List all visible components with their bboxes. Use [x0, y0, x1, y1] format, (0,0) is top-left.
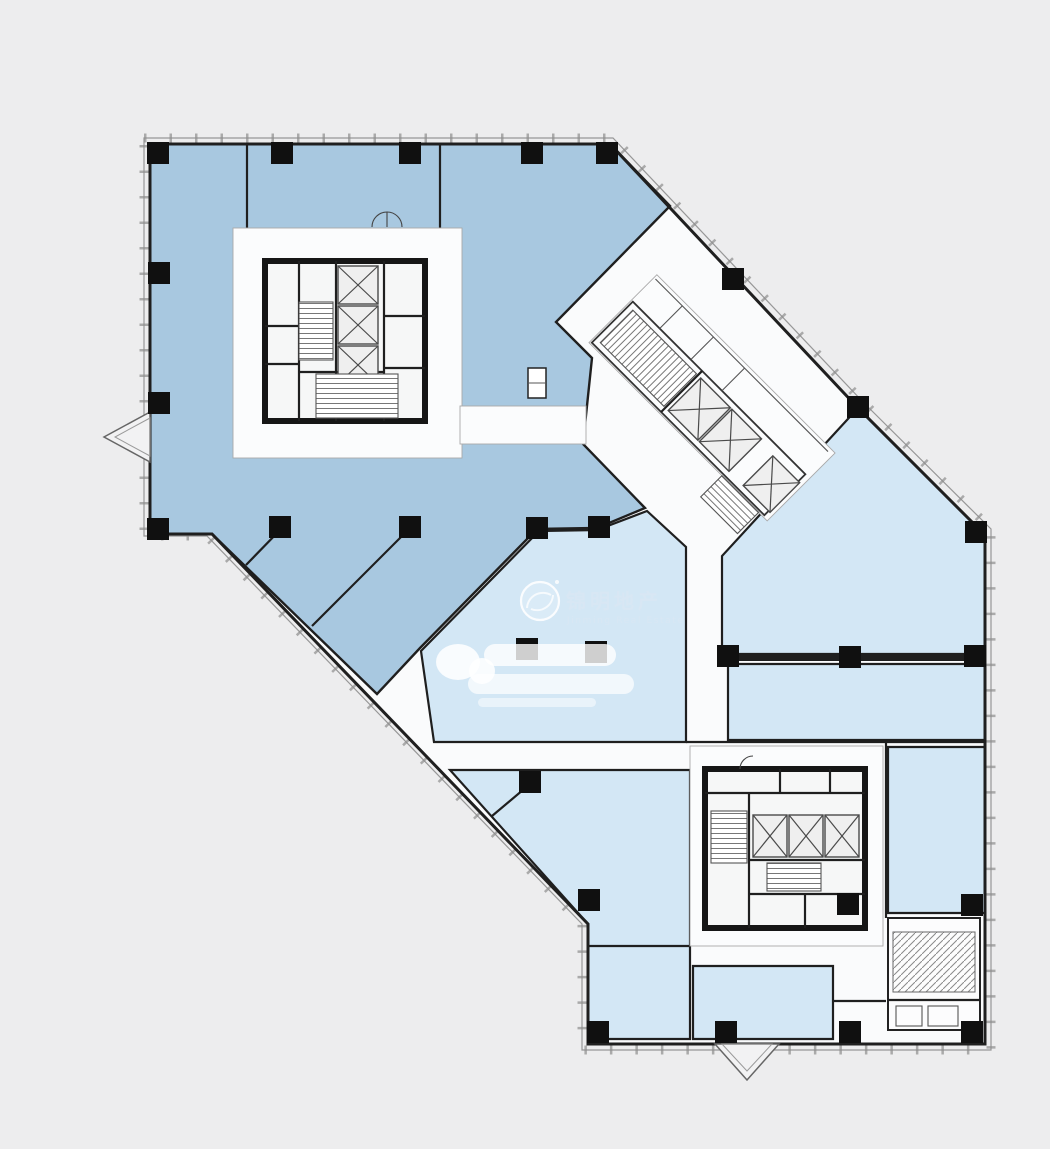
elevator-icon — [753, 815, 787, 857]
zone-light-right — [728, 664, 985, 740]
watermark-brand-en: Jinming Real Estate — [566, 616, 685, 626]
column — [588, 516, 610, 538]
column — [399, 142, 421, 164]
zone-light-bottom-center — [693, 966, 833, 1039]
machine-room-hatch — [316, 374, 398, 418]
watermark-logo-icon — [521, 580, 559, 620]
elevator-icon — [338, 266, 378, 304]
column — [148, 392, 170, 414]
column — [715, 1021, 737, 1043]
column — [526, 517, 548, 539]
column — [964, 645, 986, 667]
column — [578, 889, 600, 911]
column — [722, 268, 744, 290]
column — [961, 1021, 983, 1043]
floor-plan-figure: 锦明地产 Jinming Real Estate — [40, 16, 1050, 1149]
column — [269, 516, 291, 538]
column — [847, 396, 869, 418]
column — [147, 142, 169, 164]
column — [147, 518, 169, 540]
watermark-brand-cn: 锦明地产 — [566, 589, 662, 613]
column — [519, 771, 541, 793]
column — [837, 893, 859, 915]
elevator-icon — [825, 815, 859, 857]
column — [717, 645, 739, 667]
column — [596, 142, 618, 164]
corridor-arm — [460, 406, 586, 444]
floor-plan: 锦明地产 Jinming Real Estate — [40, 16, 1050, 1149]
column — [587, 1021, 609, 1043]
column — [839, 1021, 861, 1043]
column — [399, 516, 421, 538]
column — [965, 521, 987, 543]
machine-room-hatch — [767, 863, 821, 891]
floor-plan-svg: 锦明地产 Jinming Real Estate — [40, 16, 1050, 1149]
elevator-icon — [789, 815, 823, 857]
column — [961, 894, 983, 916]
stair-icon — [893, 932, 975, 992]
stair-icon — [711, 811, 747, 863]
column — [839, 646, 861, 668]
elevator-icon — [338, 306, 378, 344]
stairwell-bottom-right — [888, 918, 980, 1030]
column — [148, 262, 170, 284]
zone-light-right-lower — [888, 747, 985, 913]
column — [521, 142, 543, 164]
core-lower-right — [690, 746, 883, 946]
column — [271, 142, 293, 164]
stair-icon — [299, 302, 333, 360]
